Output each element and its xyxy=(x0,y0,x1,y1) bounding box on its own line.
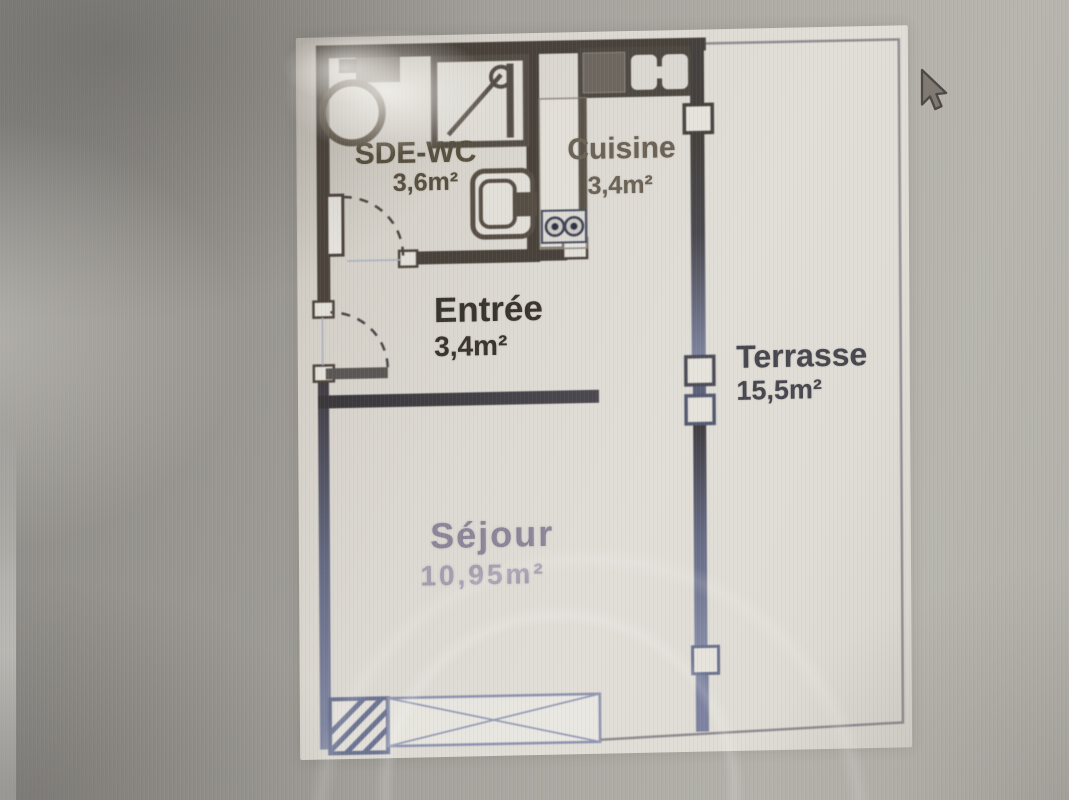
terrace-wall-seg1 xyxy=(690,38,704,105)
room-label-sejour: Séjour 10,95m² xyxy=(430,515,556,591)
sdewc-door-swing-arc xyxy=(343,196,403,257)
room-name: Terrasse xyxy=(736,338,867,374)
kitchen-sink-icon xyxy=(631,54,657,90)
room-label-cuisine: Cuisine 3,4m² xyxy=(567,132,676,199)
screen-photo: SDE-WC 3,6m² Cuisine 3,4m² Entrée 3,4m² … xyxy=(0,0,1069,800)
washbasin-tap xyxy=(339,59,357,73)
doors xyxy=(325,194,404,380)
kitchen-sink-link xyxy=(655,66,664,78)
toilet-tank xyxy=(513,192,537,217)
sdewc-door-leaf xyxy=(327,195,343,255)
floor-plan: SDE-WC 3,6m² Cuisine 3,4m² Entrée 3,4m² … xyxy=(0,0,1069,800)
sdewc-bottom-wall xyxy=(403,249,540,265)
bay-window xyxy=(308,690,600,756)
entry-door-swing-arc xyxy=(330,311,387,368)
sejour-left-wall xyxy=(318,380,331,749)
window-marker-terrasse-2 xyxy=(686,395,714,424)
room-label-terrasse: Terrasse 15,5m² xyxy=(736,338,867,405)
washbasin-icon xyxy=(322,82,382,143)
room-name: Séjour xyxy=(430,515,556,555)
left-wall xyxy=(316,45,331,303)
terrace-wall-seg4 xyxy=(693,423,707,647)
shelf-shadow xyxy=(356,57,400,83)
plan-linework xyxy=(0,0,1069,800)
window-marker-cuisine xyxy=(684,104,712,133)
room-area: 15,5m² xyxy=(736,372,867,405)
window-marker-terrasse-3 xyxy=(693,646,719,674)
room-area: 10,95m² xyxy=(420,553,545,591)
kitchen-sink-basin2 xyxy=(662,54,688,90)
terrace-wall-seg5 xyxy=(696,673,709,731)
room-area: 3,4m² xyxy=(567,164,676,200)
room-area: 3,4m² xyxy=(434,328,543,362)
entry-door-leaf xyxy=(326,367,388,379)
room-area: 3,6m² xyxy=(355,168,477,197)
room-name: Cuisine xyxy=(567,132,676,166)
room-name: Entrée xyxy=(434,291,543,330)
kitchen-appliance xyxy=(583,52,625,93)
room-label-entree: Entrée 3,4m² xyxy=(434,291,543,361)
window-marker-terrasse-1 xyxy=(686,356,714,385)
sdewc-threshold xyxy=(347,260,401,261)
terrace-wall-seg2 xyxy=(690,132,705,358)
entree-sejour-wall xyxy=(318,390,599,409)
room-label-sdewc: SDE-WC 3,6m² xyxy=(355,136,477,196)
room-name: SDE-WC xyxy=(355,136,477,170)
